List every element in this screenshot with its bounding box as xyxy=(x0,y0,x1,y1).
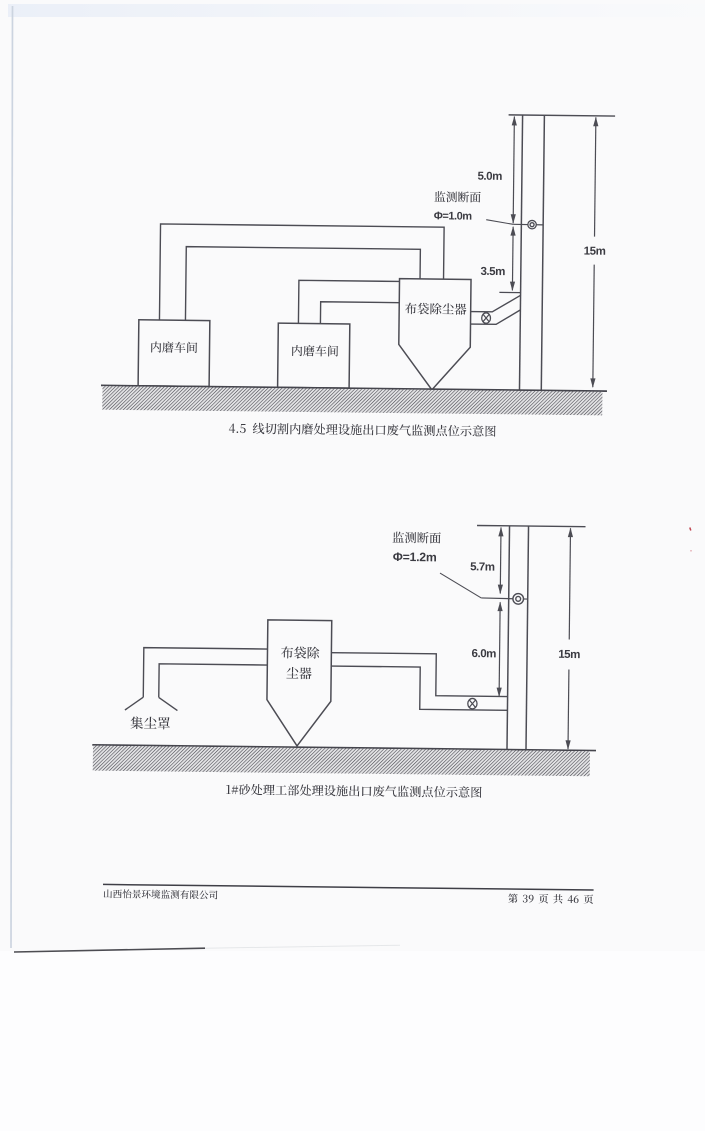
svg-text:6.0m: 6.0m xyxy=(471,648,496,660)
svg-text:3.5m: 3.5m xyxy=(480,266,505,278)
svg-text:Φ=1.0m: Φ=1.0m xyxy=(434,210,473,222)
svg-text:15m: 15m xyxy=(558,649,580,661)
svg-text:15m: 15m xyxy=(584,246,606,258)
svg-text:Φ=1.2m: Φ=1.2m xyxy=(393,550,437,564)
svg-text:5.7m: 5.7m xyxy=(470,561,495,573)
svg-text:5.0m: 5.0m xyxy=(477,171,502,183)
